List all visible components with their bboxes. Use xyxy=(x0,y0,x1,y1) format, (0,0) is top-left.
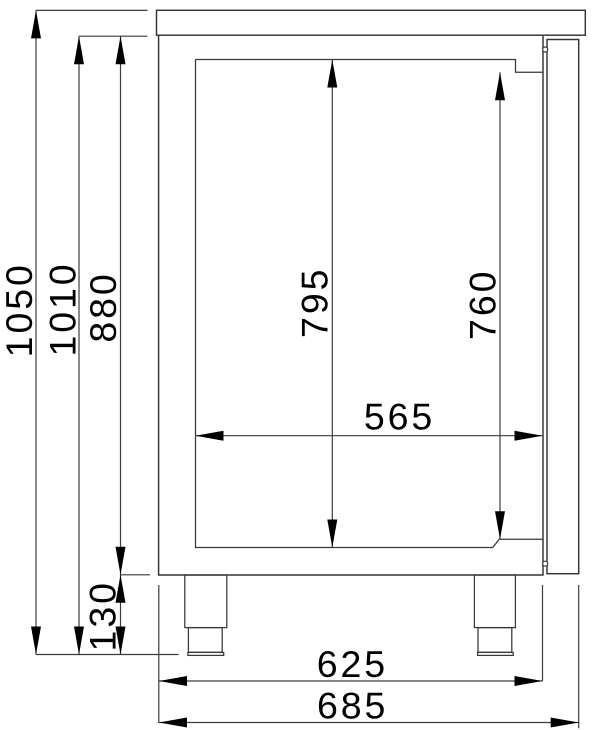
svg-text:880: 880 xyxy=(82,271,124,342)
svg-text:625: 625 xyxy=(317,643,388,685)
svg-text:795: 795 xyxy=(294,267,336,338)
svg-text:685: 685 xyxy=(317,685,388,727)
svg-text:565: 565 xyxy=(364,395,435,437)
svg-text:1010: 1010 xyxy=(42,261,84,356)
svg-text:760: 760 xyxy=(462,269,504,340)
svg-text:130: 130 xyxy=(81,580,123,651)
svg-text:1050: 1050 xyxy=(0,262,40,357)
